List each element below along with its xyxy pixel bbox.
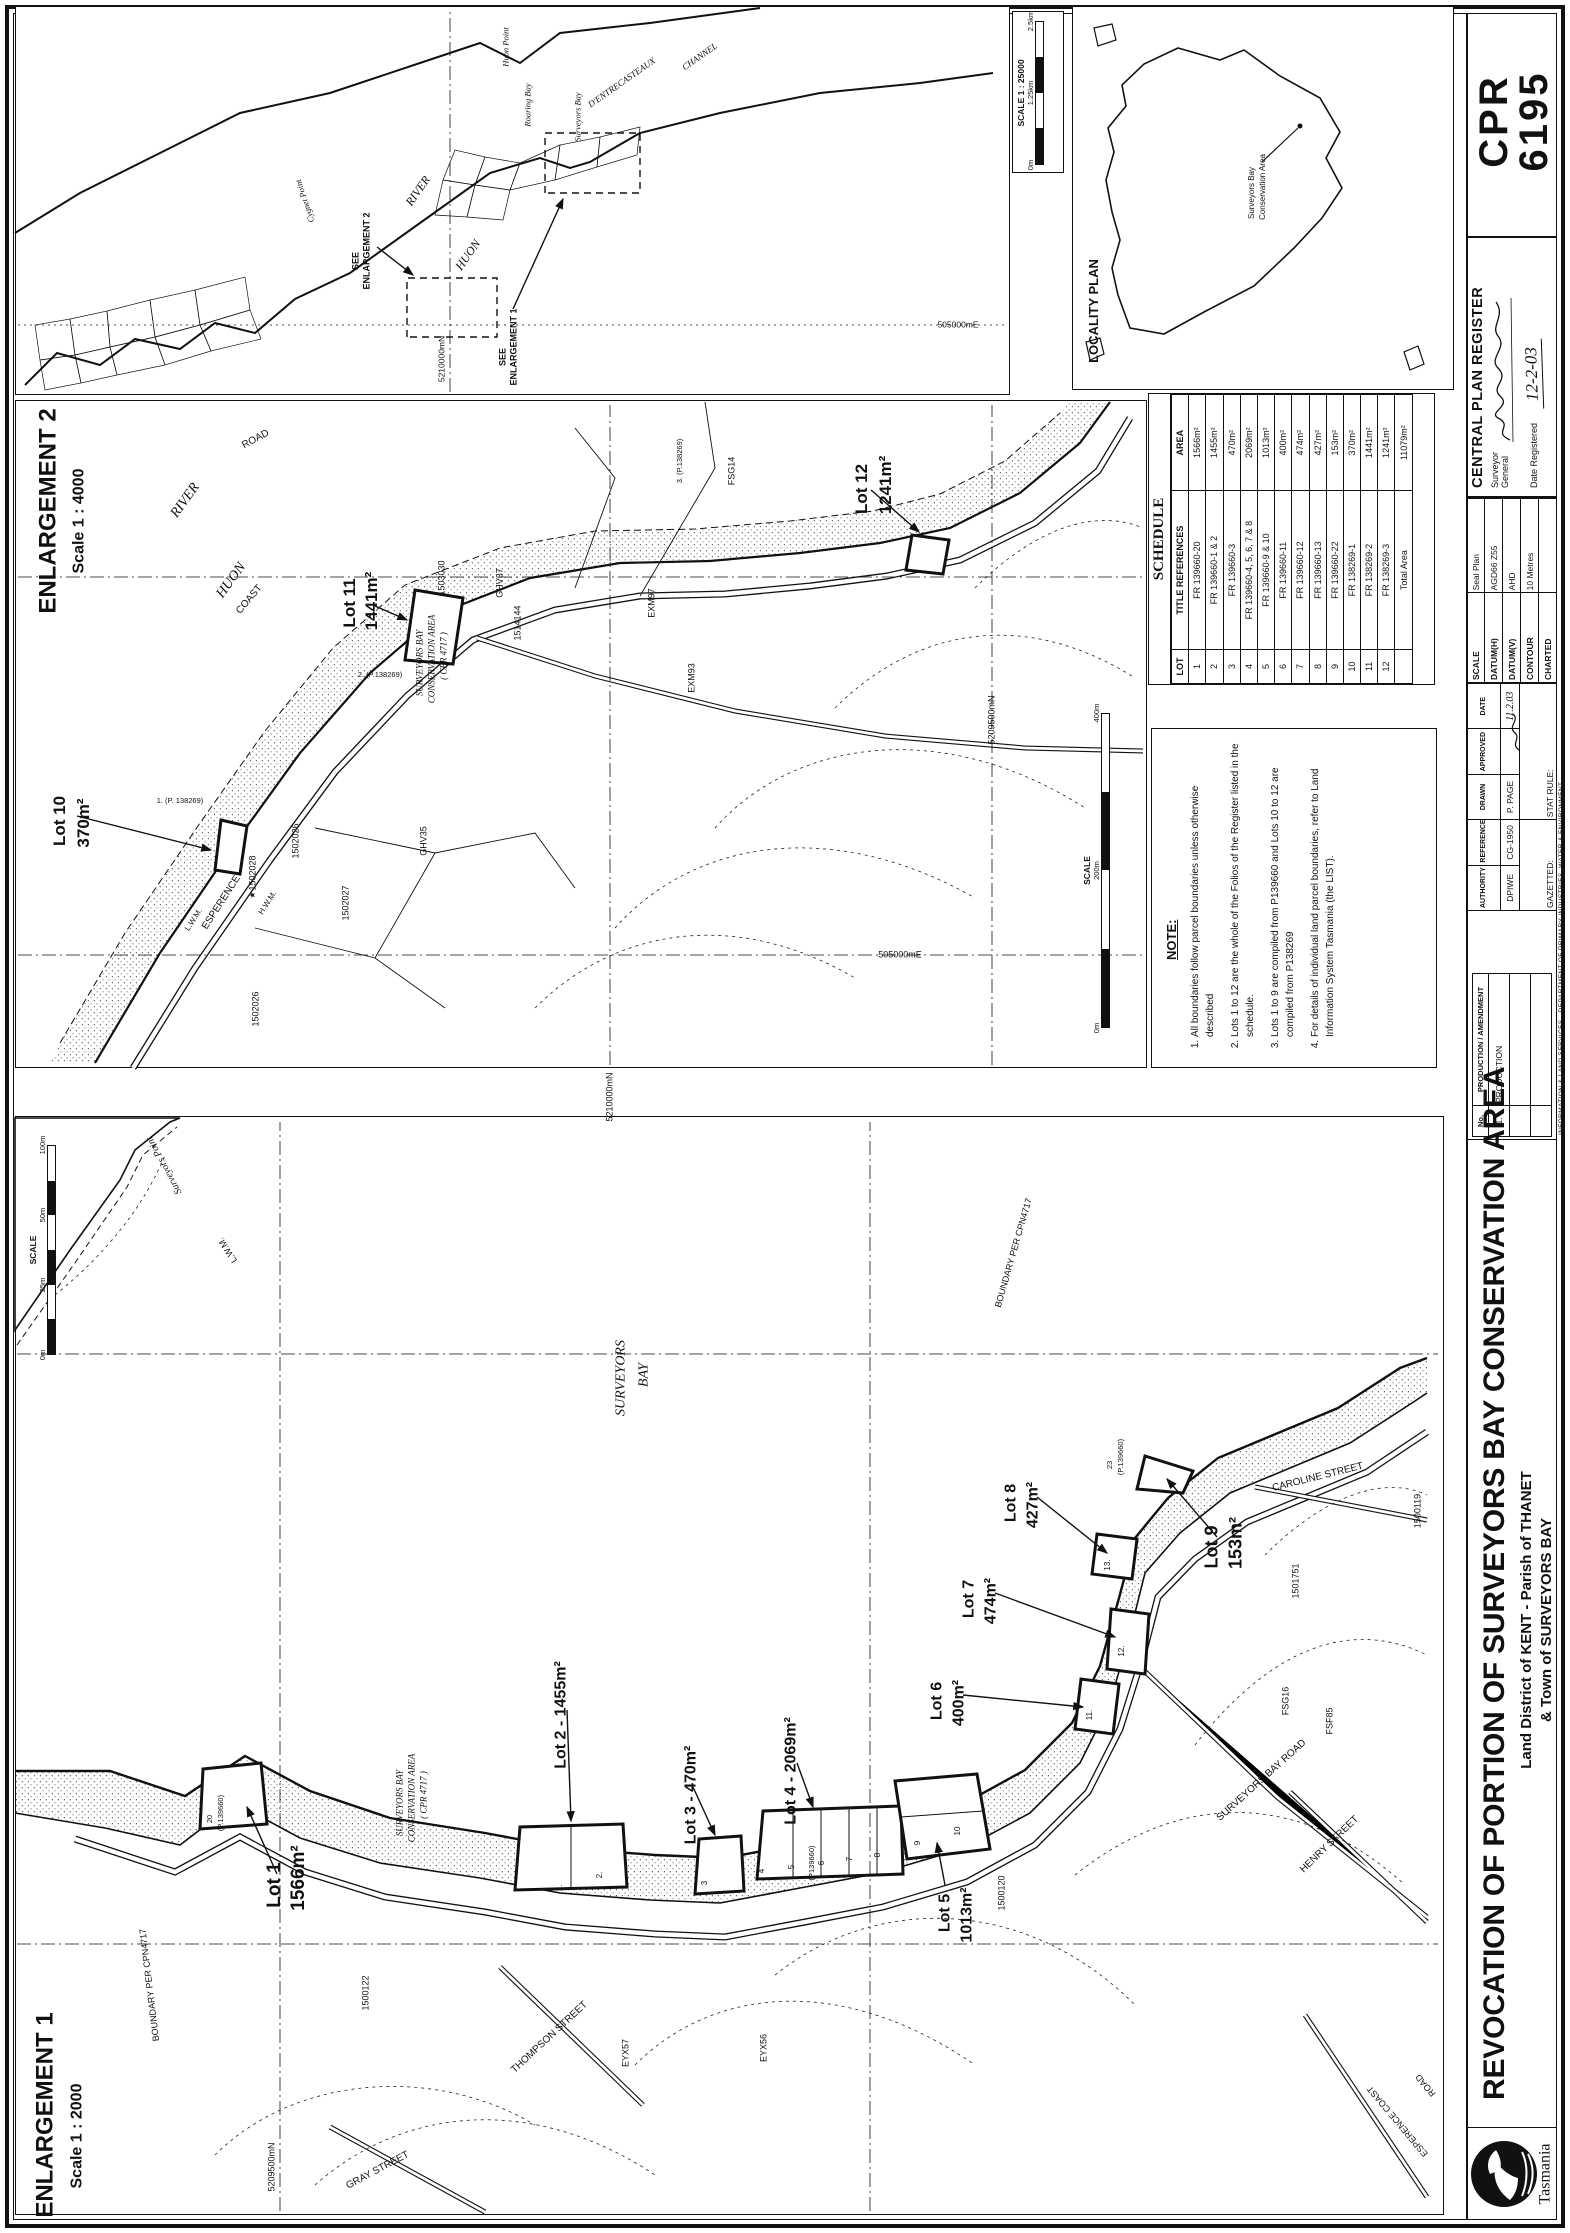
- map-label: 6: [818, 1861, 826, 1865]
- department-credit-line: INFORMATION & LAND SERVICES - DEPARTMENT…: [1558, 782, 1565, 1135]
- scalebar-segment: [1102, 949, 1109, 1027]
- e1-contours: [55, 1155, 1427, 2185]
- map-label: ( CPR 4717 ): [439, 632, 448, 680]
- schedule-cell: 400m²: [1275, 395, 1292, 491]
- datum-label: DATUM(V): [1503, 593, 1521, 683]
- map-label: 13.: [1104, 1559, 1112, 1570]
- enlargement2-scalebar-label: SCALE: [1082, 713, 1092, 1028]
- scalebar-segment: [48, 1319, 55, 1354]
- locality-site-dot: [1298, 124, 1303, 129]
- map-label: 1441m²: [363, 572, 381, 631]
- schedule-cell: FR 139660-1 & 2: [1206, 491, 1223, 650]
- map-label: 7: [846, 1857, 854, 1861]
- map-label: 1500120: [997, 1875, 1006, 1910]
- map-label: 1502027: [341, 885, 350, 920]
- approvals-value: DPIWE: [1501, 865, 1520, 910]
- schedule-cell: 12: [1378, 649, 1395, 683]
- schedule-cell: 6: [1275, 649, 1292, 683]
- map-label: Lot 8: [1004, 1484, 1021, 1522]
- schedule-row: 8FR 139660-13427m²: [1309, 395, 1326, 684]
- central-plan-register-block: CENTRAL PLAN REGISTER Surveyor General D…: [1466, 238, 1557, 498]
- production-no: 1.: [1489, 1106, 1510, 1137]
- map-label: 370m²: [75, 798, 93, 847]
- map-label: FSG16: [1281, 1687, 1290, 1716]
- map-label: 5209500mN: [987, 695, 996, 744]
- map-label: Lot 2 - 1455m²: [554, 1661, 571, 1769]
- note-item: Lots 1 to 9 are compiled from P139660 an…: [1269, 741, 1298, 1037]
- enlargement1-scalebar-bar: [47, 1145, 56, 1355]
- schedule-col-lot: LOT: [1172, 649, 1189, 683]
- schedule-cell: 3: [1223, 649, 1240, 683]
- notes-box: NOTE: All boundaries follow parcel bound…: [1151, 728, 1437, 1068]
- map-label: 505000mE: [878, 950, 922, 959]
- map-label: CONSERVATION AREA: [427, 615, 436, 703]
- map-label: EXM97: [647, 588, 656, 618]
- schedule-row: 4FR 139660-4, 5, 6, 7 & 82069m²: [1240, 395, 1257, 684]
- schedule-cell: FR 139660-11: [1275, 491, 1292, 650]
- schedule-cell: 2: [1206, 649, 1223, 683]
- map-label: 1013m²: [960, 1887, 977, 1942]
- schedule-cell: 10: [1343, 649, 1360, 683]
- datum-label: CHARTED: [1539, 593, 1557, 683]
- schedule-cell: FR 139660-12: [1292, 491, 1309, 650]
- datum-value: Seal Plan: [1467, 499, 1485, 593]
- e1-gridlines: [17, 1122, 1438, 2211]
- scalebar-tick: 2.5km: [1026, 11, 1035, 31]
- locality-leader: [1262, 128, 1298, 162]
- scanned-plan-page: Tasmania REVOCATION OF PORTION OF SURVEY…: [0, 0, 1570, 2233]
- schedule-cell: 427m²: [1309, 395, 1326, 491]
- cpr-number: 6195: [1514, 6, 1554, 236]
- approved-signature: [1501, 729, 1520, 774]
- approvals-header: APPROVED: [1467, 729, 1501, 774]
- scalebar-segment: [48, 1215, 55, 1250]
- map-label: 9: [914, 1841, 922, 1845]
- map-label: FSF85: [1325, 1707, 1334, 1734]
- map-label: LOCALITY PLAN: [1087, 259, 1101, 363]
- map-label: Roaring Bay: [524, 83, 533, 126]
- map-label: ENLARGEMENT 1: [509, 308, 518, 385]
- e2-conservation-strip: [50, 402, 1110, 1063]
- schedule-cell: 1441m²: [1361, 395, 1378, 491]
- map-label: 5210000mN: [438, 336, 447, 382]
- schedule-total-row: Total Area11079m²: [1395, 395, 1412, 684]
- overview-scalebar-ticks: 0m1.25km2.5km: [1026, 21, 1035, 165]
- overview-scalebar-bar: [1035, 21, 1044, 165]
- scalebar-segment: [48, 1181, 55, 1216]
- scalebar-tick: 0m: [1092, 1023, 1101, 1033]
- plan-sheet-landscape: Tasmania REVOCATION OF PORTION OF SURVEY…: [0, 0, 1570, 2233]
- enlargement2-scalebar-ticks: 0m200m400m: [1092, 713, 1101, 1028]
- scalebar-tick: 0m: [1026, 160, 1035, 170]
- map-label: 474m²: [984, 1578, 1001, 1624]
- e2-contours: [535, 521, 1143, 1009]
- map-label: (P.139660): [217, 1795, 225, 1831]
- scalebar-tick: 400m: [1092, 704, 1101, 723]
- map-label: EYX57: [621, 2039, 630, 2067]
- schedule-row: 5FR 139660-9 & 101013m²: [1257, 395, 1274, 684]
- map-label: 3: [701, 1881, 709, 1885]
- scalebar-tick: 1.25km: [1026, 81, 1035, 106]
- production-row: [1531, 974, 1552, 1137]
- map-label: SEE: [498, 348, 507, 366]
- schedule-cell: 11: [1361, 649, 1378, 683]
- enlargement1-map: [15, 1118, 1442, 2215]
- map-label: Lot 4 - 2069m²: [784, 1717, 801, 1825]
- schedule-row: 7FR 139660-12474m²: [1292, 395, 1309, 684]
- register-title: CENTRAL PLAN REGISTER: [1470, 246, 1486, 488]
- surveyor-general-label-1: Surveyor: [1490, 452, 1500, 488]
- scalebar-segment: [1036, 93, 1043, 129]
- schedule-cell: FR 139660-20: [1189, 491, 1206, 650]
- map-label: 1. (P. 138269): [157, 797, 204, 805]
- enlargement1-scalebar-ticks: 0m25m50m100m: [38, 1145, 47, 1355]
- enlargement1-scalebar-label: SCALE: [28, 1145, 38, 1355]
- date-registered-value: 12-2-03: [1521, 339, 1544, 410]
- map-label: 1502028: [248, 855, 257, 890]
- schedule-total-value: 11079m²: [1395, 395, 1412, 491]
- approvals-header-row: AUTHORITYREFERENCEDRAWNAPPROVEDDATE: [1467, 684, 1501, 911]
- map-label: 153m²: [1227, 1517, 1246, 1569]
- production-col-desc: PRODUCTION / AMENDMENT: [1473, 974, 1489, 1106]
- enlargement2-scalebar: SCALE0m200m400m: [1082, 713, 1110, 1028]
- map-label: 3. (P.138269): [676, 439, 684, 483]
- map-label: 20: [206, 1815, 214, 1823]
- schedule-cell: 470m²: [1223, 395, 1240, 491]
- tasmania-wordmark: Tasmania: [1538, 2143, 1555, 2204]
- map-label: EYX56: [759, 2034, 768, 2062]
- scalebar-segment: [48, 1285, 55, 1320]
- production-no: [1531, 1106, 1552, 1137]
- datum-value: [1539, 499, 1557, 593]
- map-label: 8: [874, 1853, 882, 1857]
- ov-parcel-mesh: [35, 127, 640, 390]
- scalebar-segment: [1036, 129, 1043, 165]
- map-label: EXM93: [687, 663, 696, 693]
- schedule-cell: 8: [1309, 649, 1326, 683]
- map-label: ENLARGEMENT 2: [35, 408, 60, 613]
- production-row: [1510, 974, 1531, 1137]
- map-label: 23: [1106, 1461, 1114, 1469]
- approvals-value: P. PAGE: [1501, 774, 1520, 819]
- map-label: (P139660): [808, 1845, 816, 1880]
- schedule-cell: FR 138269-2: [1361, 491, 1378, 650]
- datum-row: CHARTED: [1539, 499, 1557, 683]
- map-label: 400m²: [952, 1680, 969, 1726]
- datum-row: SCALESeal Plan: [1467, 499, 1485, 683]
- production-amendment-table: No.PRODUCTION / AMENDMENT1.PRODUCTION: [1472, 973, 1552, 1137]
- map-label: 1.: [556, 1885, 564, 1892]
- datum-value: AGD66 Z55: [1485, 499, 1503, 593]
- approvals-value-row: DPIWECG-1950P. PAGE11.2.03: [1501, 684, 1520, 911]
- schedule-header-row: LOT TITLE REFERENCES AREA: [1172, 395, 1189, 684]
- map-label: Lot 11: [341, 578, 359, 627]
- map-label: Lot 3 - 470m²: [684, 1746, 701, 1845]
- scalebar-segment: [1036, 58, 1043, 94]
- map-label: 5210000mN: [605, 1072, 614, 1121]
- map-label: ENLARGEMENT 2: [362, 212, 371, 289]
- schedule-cell: 4: [1240, 649, 1257, 683]
- schedule-cell: 5: [1257, 649, 1274, 683]
- map-label: 1514144: [513, 605, 522, 640]
- schedule-cell: FR 139660-13: [1309, 491, 1326, 650]
- map-label: 1501751: [1291, 1563, 1300, 1598]
- map-label: Scale 1 : 4000: [72, 469, 89, 574]
- map-label: Lot 10: [51, 796, 69, 846]
- date-registered-label: Date Registered: [1529, 423, 1539, 488]
- map-label: 4: [758, 1869, 766, 1873]
- datum-label: DATUM(H): [1485, 593, 1503, 683]
- e2-branch-road: [477, 638, 1143, 751]
- scalebar-tick: 200m: [1092, 861, 1101, 880]
- map-label: 12.: [1118, 1645, 1126, 1656]
- map-label: Lot 6: [930, 1682, 947, 1720]
- schedule-row: 3FR 139660-3470m²: [1223, 395, 1240, 684]
- map-label: ( CPR 4717 ): [419, 1771, 428, 1819]
- schedule-cell: FR 139660-4, 5, 6, 7 & 8: [1240, 491, 1257, 650]
- map-label: 5: [788, 1865, 796, 1869]
- production-desc: [1531, 974, 1552, 1106]
- approvals-header: DATE: [1467, 684, 1501, 729]
- map-label: 1502026: [251, 991, 260, 1026]
- map-label: Lot 7: [962, 1580, 979, 1618]
- map-label: 1503030: [437, 560, 446, 595]
- production-col-no: No.: [1473, 1106, 1489, 1137]
- map-label: 10: [954, 1827, 962, 1836]
- scalebar-tick: 100m: [38, 1136, 47, 1155]
- surveyor-general-signature: [1490, 294, 1516, 444]
- datum-row: DATUM(V)AHD: [1503, 499, 1521, 683]
- schedule-cell: FR 138269-3: [1378, 491, 1395, 650]
- plan-subtitle-2: & Town of SURVEYORS BAY: [1538, 1140, 1555, 2100]
- map-label: Scale 1 : 2000: [70, 2084, 87, 2189]
- scalebar-tick: 50m: [38, 1208, 47, 1223]
- map-label: 2.: [596, 1872, 604, 1879]
- map-label: Lot 5: [938, 1894, 955, 1932]
- schedule-cell: 1: [1189, 649, 1206, 683]
- map-label: Huon Point: [502, 27, 511, 66]
- map-label: Surveyors Bay: [574, 92, 583, 141]
- schedule-cell: 1013m²: [1257, 395, 1274, 491]
- schedule-row: 2FR 139660-1 & 21455m²: [1206, 395, 1223, 684]
- note-item: All boundaries follow parcel boundaries …: [1189, 741, 1218, 1037]
- map-label: 1500122: [361, 1975, 370, 2010]
- datum-value: 10 Metres: [1521, 499, 1539, 593]
- schedule-cell: 7: [1292, 649, 1309, 683]
- datum-table: SCALESeal PlanDATUM(H)AGD66 Z55DATUM(V)A…: [1466, 498, 1557, 683]
- scalebar-segment: [48, 1250, 55, 1285]
- map-label: Lot 9: [1203, 1526, 1222, 1569]
- map-label: FSG14: [727, 457, 736, 486]
- approvals-header: DRAWN: [1467, 774, 1501, 819]
- map-label: Conservation Area: [1259, 154, 1267, 220]
- schedule-cell: FR 139660-9 & 10: [1257, 491, 1274, 650]
- schedule-cell: 370m²: [1343, 395, 1360, 491]
- schedule-cell: 1241m²: [1378, 395, 1395, 491]
- schedule-cell: 1455m²: [1206, 395, 1223, 491]
- notes-title: NOTE:: [1164, 741, 1179, 960]
- note-item: Lots 1 to 12 are the whole of the Folios…: [1229, 741, 1258, 1037]
- scalebar-tick: 0m: [38, 1350, 47, 1360]
- enlargement1-scalebar: SCALE0m25m50m100m: [28, 1145, 56, 1355]
- plan-title: REVOCATION OF PORTION OF SURVEYORS BAY C…: [1478, 1140, 1512, 2100]
- overview-scalebar-label: SCALE 1 : 25000: [1016, 21, 1026, 165]
- approvals-value: CG-1950: [1501, 820, 1520, 865]
- map-label: SURVEYORS: [615, 1340, 630, 1416]
- map-label: CONSERVATION AREA: [407, 1754, 416, 1842]
- map-label: 1241m²: [877, 456, 895, 515]
- overview-scalebar: SCALE 1 : 250000m1.25km2.5km: [1016, 21, 1044, 165]
- schedule-col-area: AREA: [1172, 395, 1189, 491]
- map-label: GHV37: [495, 568, 504, 598]
- scalebar-segment: [1036, 22, 1043, 58]
- approvals-bottom-row: GAZETTED:STAT RULE:: [1520, 684, 1557, 911]
- datum-row: DATUM(H)AGD66 Z55: [1485, 499, 1503, 683]
- schedule-cell: 474m²: [1292, 395, 1309, 491]
- schedule-cell: [1395, 649, 1412, 683]
- map-label: ENLARGEMENT 1: [32, 2012, 57, 2217]
- datum-value: AHD: [1503, 499, 1521, 593]
- datum-label: CONTOUR: [1521, 593, 1539, 683]
- gazetted-cell: GAZETTED:: [1520, 820, 1557, 911]
- map-label: SEE: [351, 252, 360, 270]
- schedule-table: SCHEDULE LOT TITLE REFERENCES AREA 1FR 1…: [1148, 393, 1435, 685]
- tasmania-outline: [1106, 48, 1342, 334]
- schedule-cell: 153m²: [1326, 395, 1343, 491]
- production-desc: [1510, 974, 1531, 1106]
- map-label: 11.: [1086, 1710, 1094, 1721]
- e2-branch-road-fill: [477, 638, 1143, 751]
- schedule-row: 12FR 138269-31241m²: [1378, 395, 1395, 684]
- schedule-cell: FR 138269-1: [1343, 491, 1360, 650]
- schedule-cell: 1566m²: [1189, 395, 1206, 491]
- map-label: ★: [249, 891, 257, 898]
- approvals-header: AUTHORITY: [1467, 865, 1501, 910]
- surveyor-general-label-2: General: [1500, 452, 1510, 488]
- map-label: 5209500mN: [267, 2142, 276, 2191]
- stat-rule-cell: STAT RULE:: [1520, 684, 1557, 820]
- map-label: SURVEYORS BAY: [415, 630, 424, 697]
- datum-row: CONTOUR10 Metres: [1521, 499, 1539, 683]
- map-label: (P.139660): [1117, 1439, 1125, 1475]
- schedule-cell: FR 139660-22: [1326, 491, 1343, 650]
- map-label: 1566m²: [289, 1845, 309, 1911]
- map-label: GHV35: [419, 826, 428, 856]
- note-item: For details of individual land parcel bo…: [1309, 741, 1338, 1037]
- map-label: 2. (P.138269): [358, 671, 402, 679]
- scalebar-segment: [1102, 714, 1109, 792]
- cpr-number-box: CPR 6195: [1466, 6, 1557, 238]
- map-label: Surveyors Bay: [1248, 167, 1256, 219]
- schedule-cell: FR 139660-3: [1223, 491, 1240, 650]
- approvals-table: AUTHORITYREFERENCEDRAWNAPPROVEDDATEDPIWE…: [1466, 683, 1557, 911]
- map-label: 427m²: [1026, 1482, 1043, 1528]
- production-no: [1510, 1106, 1531, 1137]
- map-label: Lot 12: [853, 464, 871, 514]
- map-label: BAY: [638, 1363, 653, 1387]
- map-label: 1500119: [1413, 1494, 1422, 1528]
- schedule-col-title: TITLE REFERENCES: [1172, 491, 1189, 650]
- schedule-cell: 9: [1326, 649, 1343, 683]
- enlargement2-scalebar-bar: [1101, 713, 1110, 1028]
- schedule-title: SCHEDULE: [1149, 394, 1171, 684]
- schedule-row: 11FR 138269-21441m²: [1361, 395, 1378, 684]
- scalebar-segment: [1102, 792, 1109, 870]
- datum-label: SCALE: [1467, 593, 1485, 683]
- tasmania-logo-box: Tasmania: [1466, 2128, 1557, 2220]
- schedule-row: 9FR 139660-22153m²: [1326, 395, 1343, 684]
- production-header-row: No.PRODUCTION / AMENDMENT: [1473, 974, 1489, 1137]
- schedule-row: 1FR 139660-201566m²: [1189, 395, 1206, 684]
- cpr-label: CPR: [1474, 6, 1514, 236]
- scalebar-tick: 25m: [38, 1278, 47, 1293]
- map-label: 505000mE: [937, 321, 978, 330]
- schedule-total-label: Total Area: [1395, 491, 1412, 650]
- schedule-cell: 2069m²: [1240, 395, 1257, 491]
- schedule-row: 6FR 139660-11400m²: [1275, 395, 1292, 684]
- plan-subtitle-1: Land District of KENT - Parish of THANET: [1518, 1140, 1535, 2100]
- scalebar-segment: [1102, 871, 1109, 949]
- production-desc: PRODUCTION: [1489, 974, 1510, 1106]
- map-label: Lot 1: [265, 1862, 285, 1907]
- map-label: 1502026: [291, 823, 300, 858]
- map-label: SURVEYORS BAY: [395, 1770, 404, 1837]
- schedule-row: 10FR 138269-1370m²: [1343, 395, 1360, 684]
- scalebar-segment: [48, 1146, 55, 1181]
- production-row: 1.PRODUCTION: [1489, 974, 1510, 1137]
- approvals-header: REFERENCE: [1467, 820, 1501, 865]
